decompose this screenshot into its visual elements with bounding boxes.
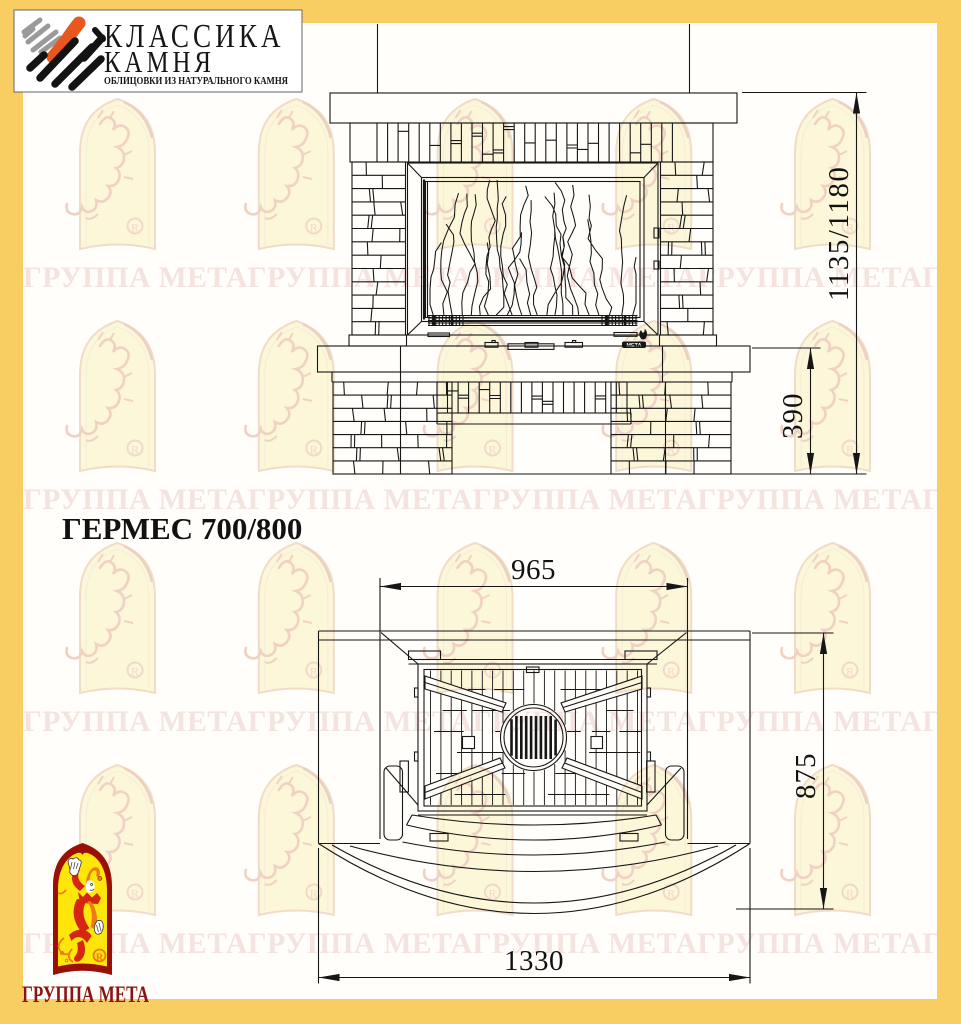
svg-text:1135/1180: 1135/1180: [823, 166, 855, 301]
svg-text:875: 875: [790, 753, 822, 800]
svg-text:R: R: [96, 953, 104, 964]
svg-text:390: 390: [777, 393, 809, 440]
svg-text:ГЕРМЕС 700/800: ГЕРМЕС 700/800: [62, 511, 302, 546]
svg-text:965: 965: [511, 554, 556, 586]
svg-text:1330: 1330: [504, 945, 564, 977]
svg-text:ОБЛИЦОВКИ ИЗ НАТУРАЛЬНОГО КАМН: ОБЛИЦОВКИ ИЗ НАТУРАЛЬНОГО КАМНЯ: [104, 75, 288, 87]
svg-text:ГРУППА МЕТА: ГРУППА МЕТА: [22, 982, 149, 1007]
